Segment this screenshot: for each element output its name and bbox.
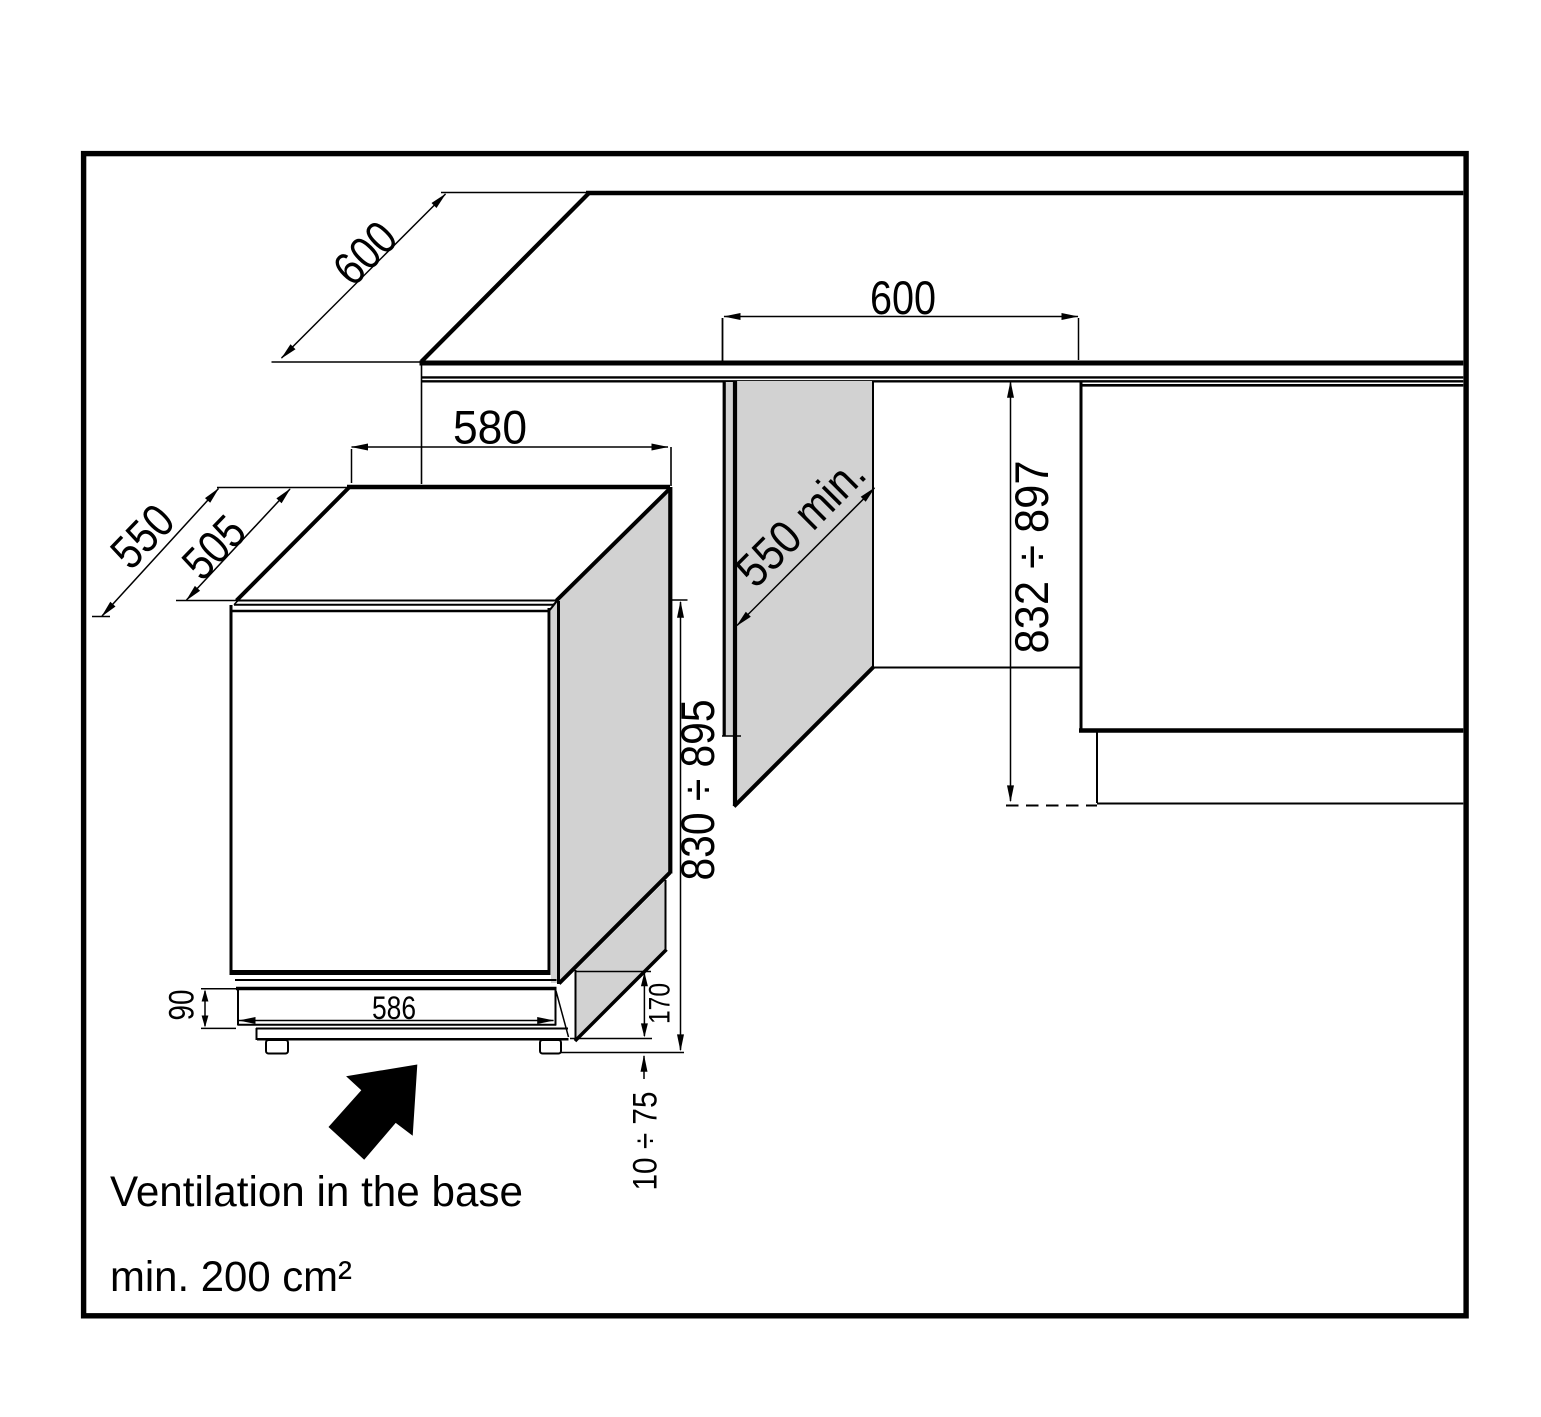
- svg-text:600: 600: [870, 271, 936, 324]
- svg-text:550: 550: [100, 494, 185, 579]
- svg-text:10 ÷ 75: 10 ÷ 75: [627, 1092, 665, 1191]
- svg-text:505: 505: [171, 505, 256, 590]
- svg-text:832 ÷ 897: 832 ÷ 897: [1005, 461, 1058, 654]
- svg-text:586: 586: [372, 990, 416, 1026]
- svg-text:Ventilation in the base: Ventilation in the base: [110, 1169, 523, 1216]
- svg-text:830 ÷ 895: 830 ÷ 895: [671, 700, 724, 881]
- svg-text:170: 170: [644, 983, 677, 1024]
- svg-text:min. 200 cm²: min. 200 cm²: [110, 1254, 352, 1301]
- svg-text:600: 600: [322, 210, 407, 295]
- svg-text:580: 580: [453, 401, 527, 454]
- svg-text:90: 90: [163, 990, 202, 1021]
